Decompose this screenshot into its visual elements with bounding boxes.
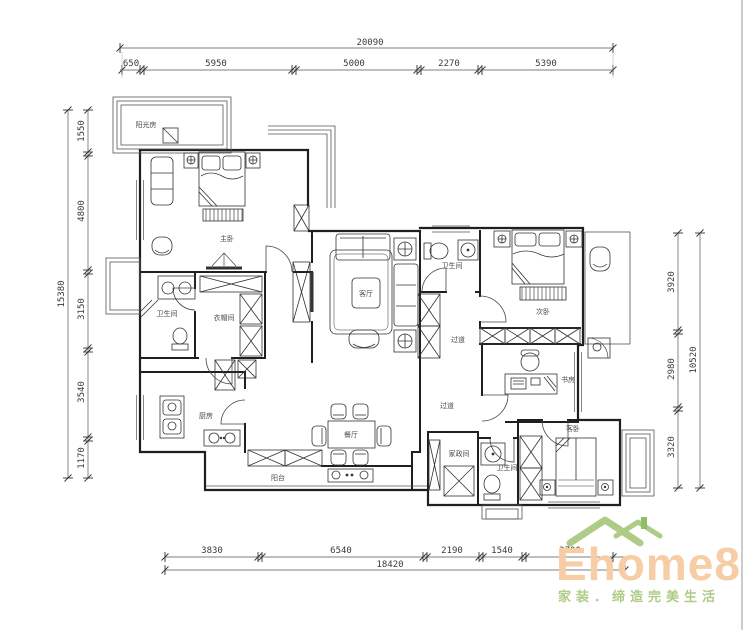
dim-top-seg-0: 650 [123, 59, 139, 69]
dimension-top-labels: 20090 650 5950 5000 2270 5390 [123, 38, 557, 69]
label-balcony: 阳台 [271, 473, 285, 482]
dim-right-total: 10520 [689, 346, 699, 373]
label-master-bedroom: 主卧 [220, 234, 234, 243]
room-labels: 阳光房 主卧 卫生间 衣帽间 厨房 阳台 餐厅 客厅 卫生间 次卧 书房 过道 … [136, 120, 581, 482]
dim-left-seg-2: 3150 [77, 298, 87, 320]
dim-left-seg-0: 1550 [77, 120, 87, 142]
guest-bed [540, 438, 613, 496]
walls-interior [140, 231, 620, 505]
dim-right-seg-0: 3920 [667, 271, 677, 293]
dim-left-total: 15380 [57, 280, 67, 307]
dim-top-seg-4: 5390 [535, 59, 557, 69]
label-hall-south: 过道 [440, 401, 454, 410]
dim-top-total: 20090 [356, 38, 383, 48]
label-study: 书房 [561, 375, 575, 384]
label-laundry: 家政间 [449, 449, 470, 458]
label-hall-north: 过道 [451, 335, 465, 344]
dim-top-seg-2: 5000 [343, 59, 365, 69]
logo-brand-text: Ehome8 [556, 538, 741, 590]
label-guest-bedroom: 客卧 [566, 424, 580, 433]
dim-bottom-total: 18420 [376, 560, 403, 570]
dimension-left-labels: 15380 1550 4800 3150 3540 1170 [57, 120, 87, 469]
dim-bottom-seg-2: 2190 [441, 546, 463, 556]
study-set [505, 350, 557, 394]
balcony-items [328, 469, 373, 482]
label-bedroom2: 次卧 [536, 307, 550, 316]
dim-bottom-seg-3: 1540 [491, 546, 513, 556]
label-living: 客厅 [359, 289, 373, 298]
label-sunroom: 阳光房 [136, 120, 157, 129]
kitchen-fixtures [160, 396, 240, 446]
floor-plan-drawing: 20090 650 5950 5000 2270 5390 15380 1550… [0, 0, 756, 630]
logo-slogan-text: 家装．缔造完美生活 [558, 589, 720, 605]
label-master-bath: 卫生间 [157, 309, 178, 318]
dim-right-seg-1: 2980 [667, 358, 677, 380]
logo: Ehome8 家装．缔造完美生活 [556, 517, 741, 605]
dim-bottom-seg-0: 3830 [201, 546, 223, 556]
bath2-fixtures [424, 240, 478, 260]
dim-left-seg-4: 1170 [77, 447, 87, 469]
floor-plan-page: 20090 650 5950 5000 2270 5390 15380 1550… [0, 0, 756, 630]
label-dining: 餐厅 [344, 430, 358, 439]
dimension-left [63, 107, 93, 482]
label-bath3: 卫生间 [497, 463, 518, 472]
dim-top-seg-1: 5950 [205, 59, 227, 69]
dimension-right-labels: 3920 2980 3320 10520 [667, 271, 699, 458]
bedroom2-bed [494, 230, 610, 358]
dim-left-seg-3: 3540 [77, 381, 87, 403]
dim-right-seg-2: 3320 [667, 436, 677, 458]
dim-bottom-seg-1: 6540 [330, 546, 352, 556]
label-closet: 衣帽间 [214, 313, 235, 322]
label-kitchen: 厨房 [199, 411, 213, 420]
dim-top-seg-3: 2270 [438, 59, 460, 69]
label-bath2: 卫生间 [442, 261, 463, 270]
dim-left-seg-1: 4800 [77, 200, 87, 222]
